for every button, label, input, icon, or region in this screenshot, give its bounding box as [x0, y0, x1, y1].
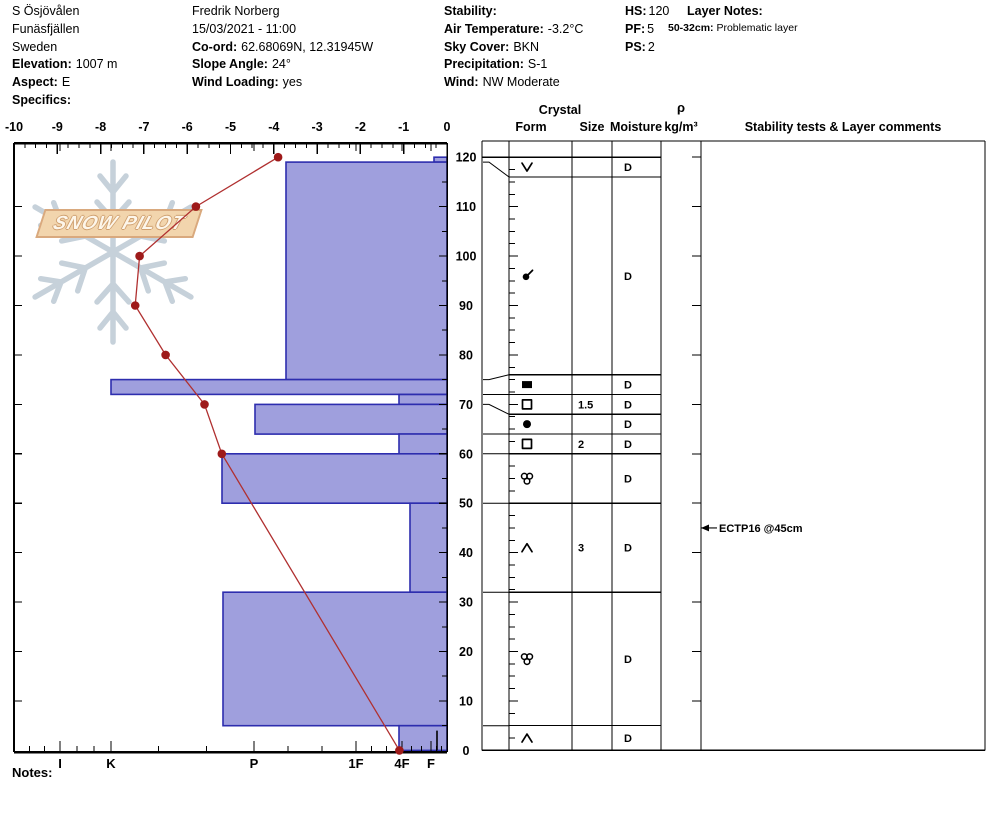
- temp-tick-label: -4: [268, 120, 279, 134]
- rounded-grains-icon: [523, 420, 531, 428]
- faceted-crystals-icon: [523, 439, 532, 448]
- site-country: Sweden: [12, 39, 117, 57]
- faceted-crystals-icon: [523, 400, 532, 409]
- temperature-point: [192, 202, 201, 211]
- test-arrow-head: [701, 525, 709, 532]
- height-tick-label: 40: [459, 546, 473, 560]
- moisture-value: D: [624, 654, 632, 666]
- site-region: Funäsfjällen: [12, 21, 117, 39]
- wind-loading-line: Wind Loading:yes: [192, 74, 373, 92]
- layer-leader-line: [483, 162, 509, 177]
- height-tick-label: 30: [459, 596, 473, 610]
- layer-leader-line: [483, 375, 509, 380]
- specifics-line: Specifics:: [12, 92, 117, 110]
- moisture-value: D: [624, 380, 632, 392]
- height-tick-label: 70: [459, 398, 473, 412]
- density-symbol-header: ρ: [677, 100, 685, 115]
- header-observer: Fredrik Norberg 15/03/2021 - 11:00 Co-or…: [192, 3, 373, 92]
- temperature-point: [395, 746, 404, 755]
- depth-hoar-icon: [522, 734, 532, 742]
- temp-tick-label: -10: [5, 120, 23, 134]
- temperature-point: [161, 351, 170, 360]
- height-tick-label: 100: [456, 250, 477, 264]
- melt-forms-icon: [522, 654, 533, 665]
- temp-tick-label: -1: [398, 120, 409, 134]
- decomposing-fragments-icon: [523, 270, 533, 280]
- hardness-bar: [111, 380, 447, 395]
- hardness-tick-label: 4F: [394, 756, 409, 771]
- hardness-tick-label: F: [427, 756, 435, 771]
- moisture-value: D: [624, 543, 632, 555]
- hs-line: HS:120: [625, 3, 669, 21]
- surface-hoar-icon: [522, 163, 532, 171]
- layer-leader-line: [483, 404, 509, 414]
- site-name: S Ösjövålen: [12, 3, 117, 21]
- ps-line: PS:2: [625, 39, 669, 57]
- grain-size-value: 2: [578, 439, 584, 451]
- snowpilot-profile-report: SNOW PILOT -10-9-8-7-6-5-4-3-2-10IKP1F4F…: [0, 0, 994, 840]
- hardness-tick-label: P: [250, 756, 259, 771]
- slope-angle-line: Slope Angle:24°: [192, 56, 373, 74]
- hardness-bar: [410, 503, 447, 592]
- density-units-header: kg/m³: [664, 120, 697, 134]
- hardness-bar: [286, 162, 447, 380]
- layer-note-entry: 50-32cm: Problematic layer: [668, 22, 798, 34]
- height-tick-label: 80: [459, 348, 473, 362]
- sky-cover-line: Sky Cover:BKN: [444, 39, 583, 57]
- header-scores: HS:120 PF:5 PS:2: [625, 3, 669, 56]
- moisture-header: Moisture: [610, 120, 662, 134]
- header-location: S Ösjövålen Funäsfjällen Sweden Elevatio…: [12, 3, 117, 110]
- height-tick-label: 90: [459, 299, 473, 313]
- hardness-bar: [399, 726, 447, 751]
- elevation-line: Elevation:1007 m: [12, 56, 117, 74]
- height-tick-label: 0: [463, 744, 470, 758]
- height-tick-label: 120: [456, 151, 477, 165]
- temperature-point: [200, 400, 209, 409]
- grain-size-value: 1.5: [578, 399, 593, 411]
- temp-tick-label: -3: [312, 120, 323, 134]
- header-conditions: Stability: Air Temperature:-3.2°C Sky Co…: [444, 3, 583, 92]
- hardness-tick-label: 1F: [348, 756, 363, 771]
- aspect-line: Aspect:E: [12, 74, 117, 92]
- moisture-value: D: [624, 399, 632, 411]
- observer-name: Fredrik Norberg: [192, 3, 373, 21]
- pf-line: PF:5: [625, 21, 669, 39]
- height-tick-label: 20: [459, 645, 473, 659]
- grain-size-value: 3: [578, 543, 584, 555]
- stability-test-label: ECTP16 @45cm: [719, 523, 803, 535]
- height-tick-label: 50: [459, 497, 473, 511]
- hardness-bar: [222, 454, 447, 503]
- temperature-point: [131, 301, 140, 310]
- moisture-value: D: [624, 419, 632, 431]
- temperature-point: [218, 450, 227, 459]
- temp-tick-label: -9: [52, 120, 63, 134]
- size-header: Size: [579, 120, 604, 134]
- profile-graph: -10-9-8-7-6-5-4-3-2-10IKP1F4FF0102030405…: [0, 0, 994, 840]
- temp-tick-label: -6: [182, 120, 193, 134]
- temp-tick-label: -8: [95, 120, 106, 134]
- hardness-bar: [399, 395, 447, 405]
- moisture-value: D: [624, 162, 632, 174]
- coordinates-line: Co-ord:62.68069N, 12.31945W: [192, 39, 373, 57]
- stability-line: Stability:: [444, 3, 583, 21]
- height-tick-label: 110: [456, 200, 476, 214]
- form-header: Form: [515, 120, 546, 134]
- moisture-value: D: [624, 474, 632, 486]
- melt-forms-icon: [522, 473, 533, 484]
- height-tick-label: 10: [459, 694, 473, 708]
- notes-label: Notes:: [12, 765, 52, 780]
- temperature-point: [135, 252, 144, 261]
- hardness-bar: [223, 592, 447, 726]
- ice-formation-icon: [522, 381, 532, 388]
- temp-tick-label: 0: [444, 120, 451, 134]
- temp-tick-label: -7: [138, 120, 149, 134]
- layer-notes-title: Layer Notes:: [687, 4, 763, 18]
- moisture-value: D: [624, 439, 632, 451]
- moisture-value: D: [624, 733, 632, 745]
- height-tick-label: 60: [459, 447, 473, 461]
- moisture-value: D: [624, 271, 632, 283]
- temperature-point: [274, 153, 283, 162]
- crystal-header: Crystal: [539, 103, 581, 117]
- hardness-bar: [399, 434, 447, 454]
- air-temp-line: Air Temperature:-3.2°C: [444, 21, 583, 39]
- temp-tick-label: -5: [225, 120, 236, 134]
- temp-tick-label: -2: [355, 120, 366, 134]
- precipitation-line: Precipitation:S-1: [444, 56, 583, 74]
- wind-line: Wind:NW Moderate: [444, 74, 583, 92]
- hardness-bar: [255, 404, 447, 434]
- depth-hoar-icon: [522, 544, 532, 552]
- hardness-tick-label: I: [58, 756, 62, 771]
- observation-datetime: 15/03/2021 - 11:00: [192, 21, 373, 39]
- comments-header: Stability tests & Layer comments: [745, 120, 942, 134]
- hardness-tick-label: K: [106, 756, 116, 771]
